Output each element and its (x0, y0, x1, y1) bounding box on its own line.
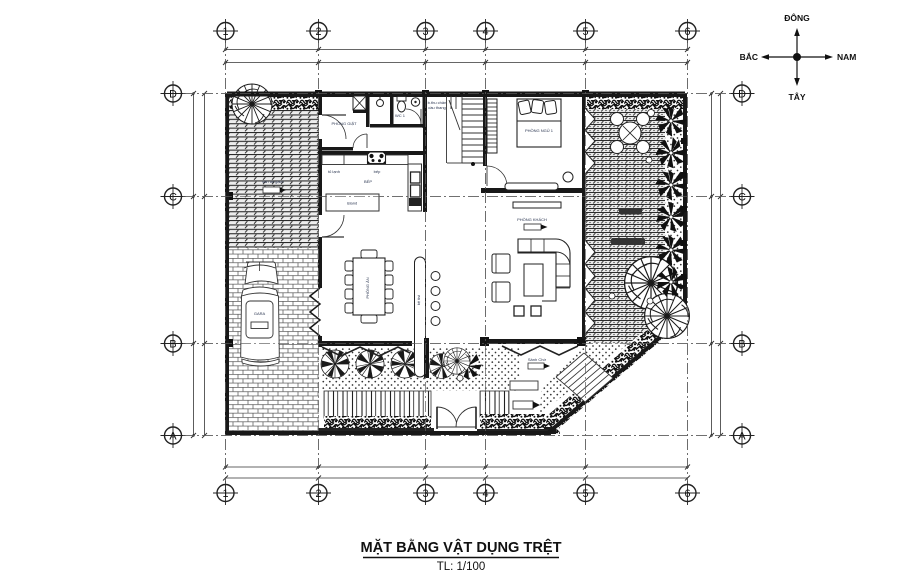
svg-text:PHÒNG ĂN: PHÒNG ĂN (365, 277, 370, 298)
svg-text:6: 6 (684, 488, 690, 500)
svg-text:5: 5 (582, 26, 588, 38)
svg-text:2: 2 (315, 488, 321, 500)
svg-text:BẾP: BẾP (364, 179, 372, 184)
svg-text:tủ lạnh: tủ lạnh (328, 169, 340, 174)
svg-text:island: island (347, 201, 357, 206)
svg-text:3: 3 (422, 488, 428, 500)
svg-text:WC 1: WC 1 (395, 113, 406, 118)
svg-text:C: C (169, 191, 177, 203)
svg-text:bếp: bếp (374, 169, 381, 174)
svg-text:ĐÔNG: ĐÔNG (784, 12, 810, 23)
svg-text:PHÒNG NGỦ 1: PHÒNG NGỦ 1 (525, 128, 554, 133)
svg-text:MẶT BẰNG VẬT DỤNG TRỆT: MẶT BẰNG VẬT DỤNG TRỆT (360, 538, 561, 556)
svg-text:2: 2 (315, 26, 321, 38)
svg-text:TL: 1/100: TL: 1/100 (437, 561, 486, 573)
svg-text:C: C (738, 191, 746, 203)
svg-text:sân lát gạch: sân lát gạch (262, 179, 284, 184)
svg-text:GARA: GARA (254, 311, 266, 316)
svg-text:PHÒNG GIẶT: PHÒNG GIẶT (331, 121, 357, 126)
svg-text:A: A (169, 430, 177, 442)
svg-text:NAM: NAM (837, 52, 856, 62)
svg-text:3: 3 (422, 26, 428, 38)
svg-text:1: 1 (222, 488, 228, 500)
svg-text:BẮC: BẮC (740, 52, 758, 62)
svg-text:Sảnh Chờ: Sảnh Chờ (528, 357, 547, 362)
svg-text:cầu thang: cầu thang (428, 105, 446, 110)
svg-text:5: 5 (582, 488, 588, 500)
svg-text:4: 4 (482, 488, 488, 500)
svg-text:D: D (738, 88, 746, 100)
svg-text:B: B (738, 338, 745, 350)
svg-text:kệ tivi: kệ tivi (416, 295, 421, 305)
svg-text:1: 1 (222, 26, 228, 38)
svg-text:6: 6 (684, 26, 690, 38)
svg-text:PHÒNG KHÁCH: PHÒNG KHÁCH (517, 217, 547, 222)
svg-text:TÂY: TÂY (789, 91, 806, 102)
svg-text:A: A (738, 430, 746, 442)
svg-text:4: 4 (482, 26, 488, 38)
svg-text:D: D (169, 88, 177, 100)
svg-text:B: B (169, 338, 176, 350)
